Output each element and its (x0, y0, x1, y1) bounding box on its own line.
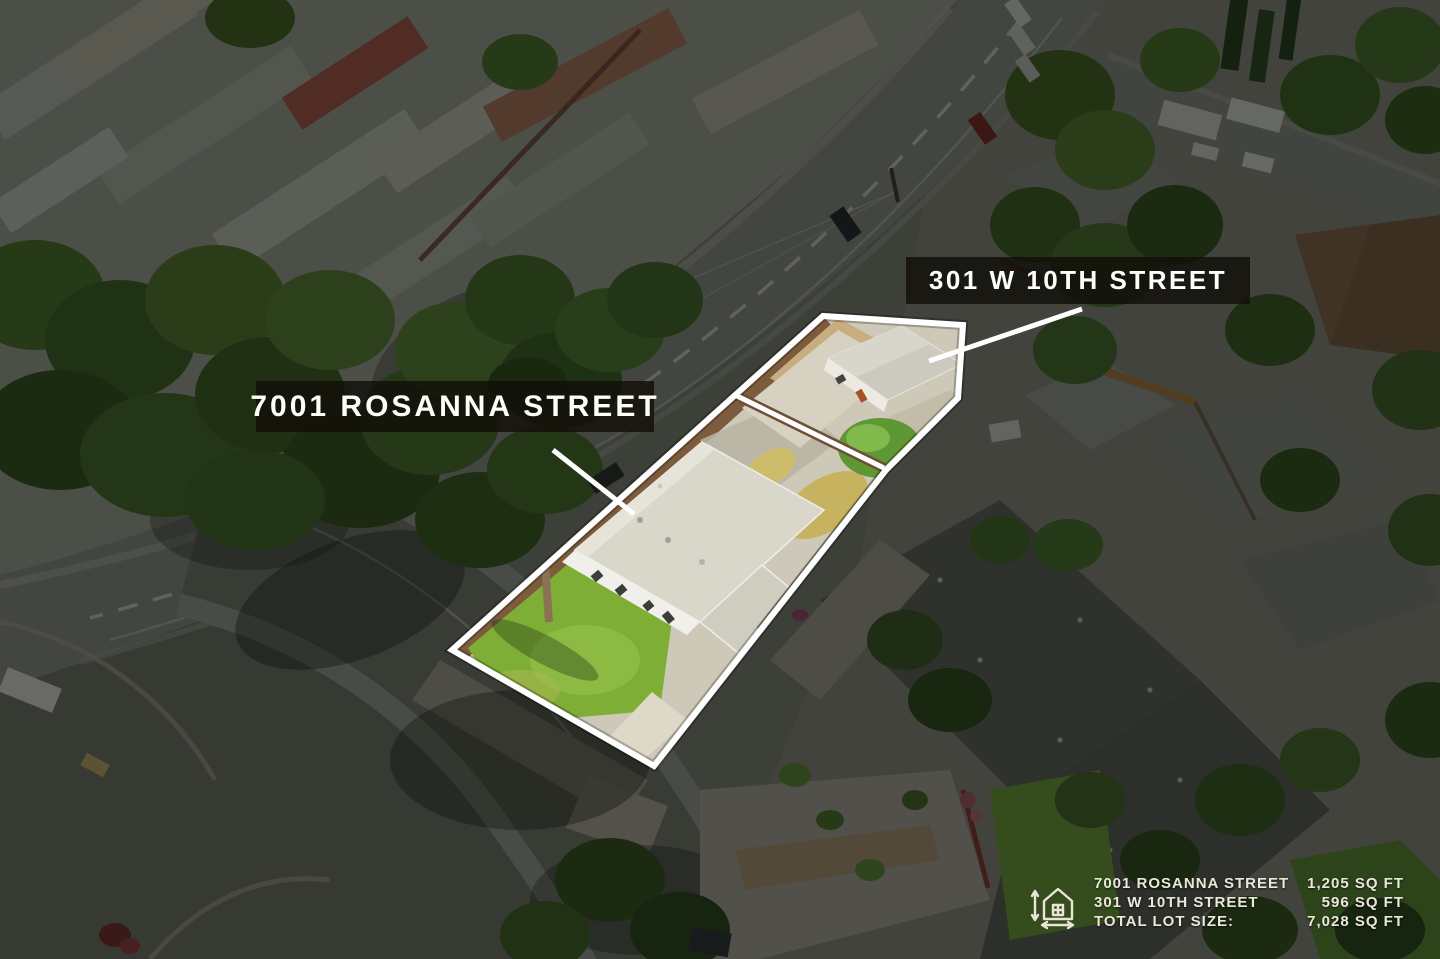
legend-label: 7001 ROSANNA STREET (1094, 874, 1289, 893)
legend-row-rosanna: 7001 ROSANNA STREET 1,205 SQ FT (1094, 874, 1404, 893)
legend-value: 596 SQ FT (1322, 893, 1404, 912)
aerial-scene (0, 0, 1440, 959)
legend-row-tenth: 301 W 10TH STREET 596 SQ FT (1094, 893, 1404, 912)
legend-label: 301 W 10TH STREET (1094, 893, 1259, 912)
legend-label: TOTAL LOT SIZE: (1094, 912, 1234, 931)
label-7001-rosanna: 7001 ROSANNA STREET (256, 381, 654, 432)
sqft-legend: 7001 ROSANNA STREET 1,205 SQ FT 301 W 10… (1025, 872, 1407, 947)
aerial-listing-photo: 7001 ROSANNA STREET 301 W 10TH STREET 70… (0, 0, 1440, 959)
legend-value: 7,028 SQ FT (1307, 912, 1404, 931)
legend-row-total: TOTAL LOT SIZE: 7,028 SQ FT (1094, 912, 1404, 931)
house-dimensions-icon (1029, 882, 1079, 930)
legend-value: 1,205 SQ FT (1307, 874, 1404, 893)
label-301-w-10th: 301 W 10TH STREET (906, 257, 1250, 304)
legend-rows: 7001 ROSANNA STREET 1,205 SQ FT 301 W 10… (1094, 874, 1404, 931)
